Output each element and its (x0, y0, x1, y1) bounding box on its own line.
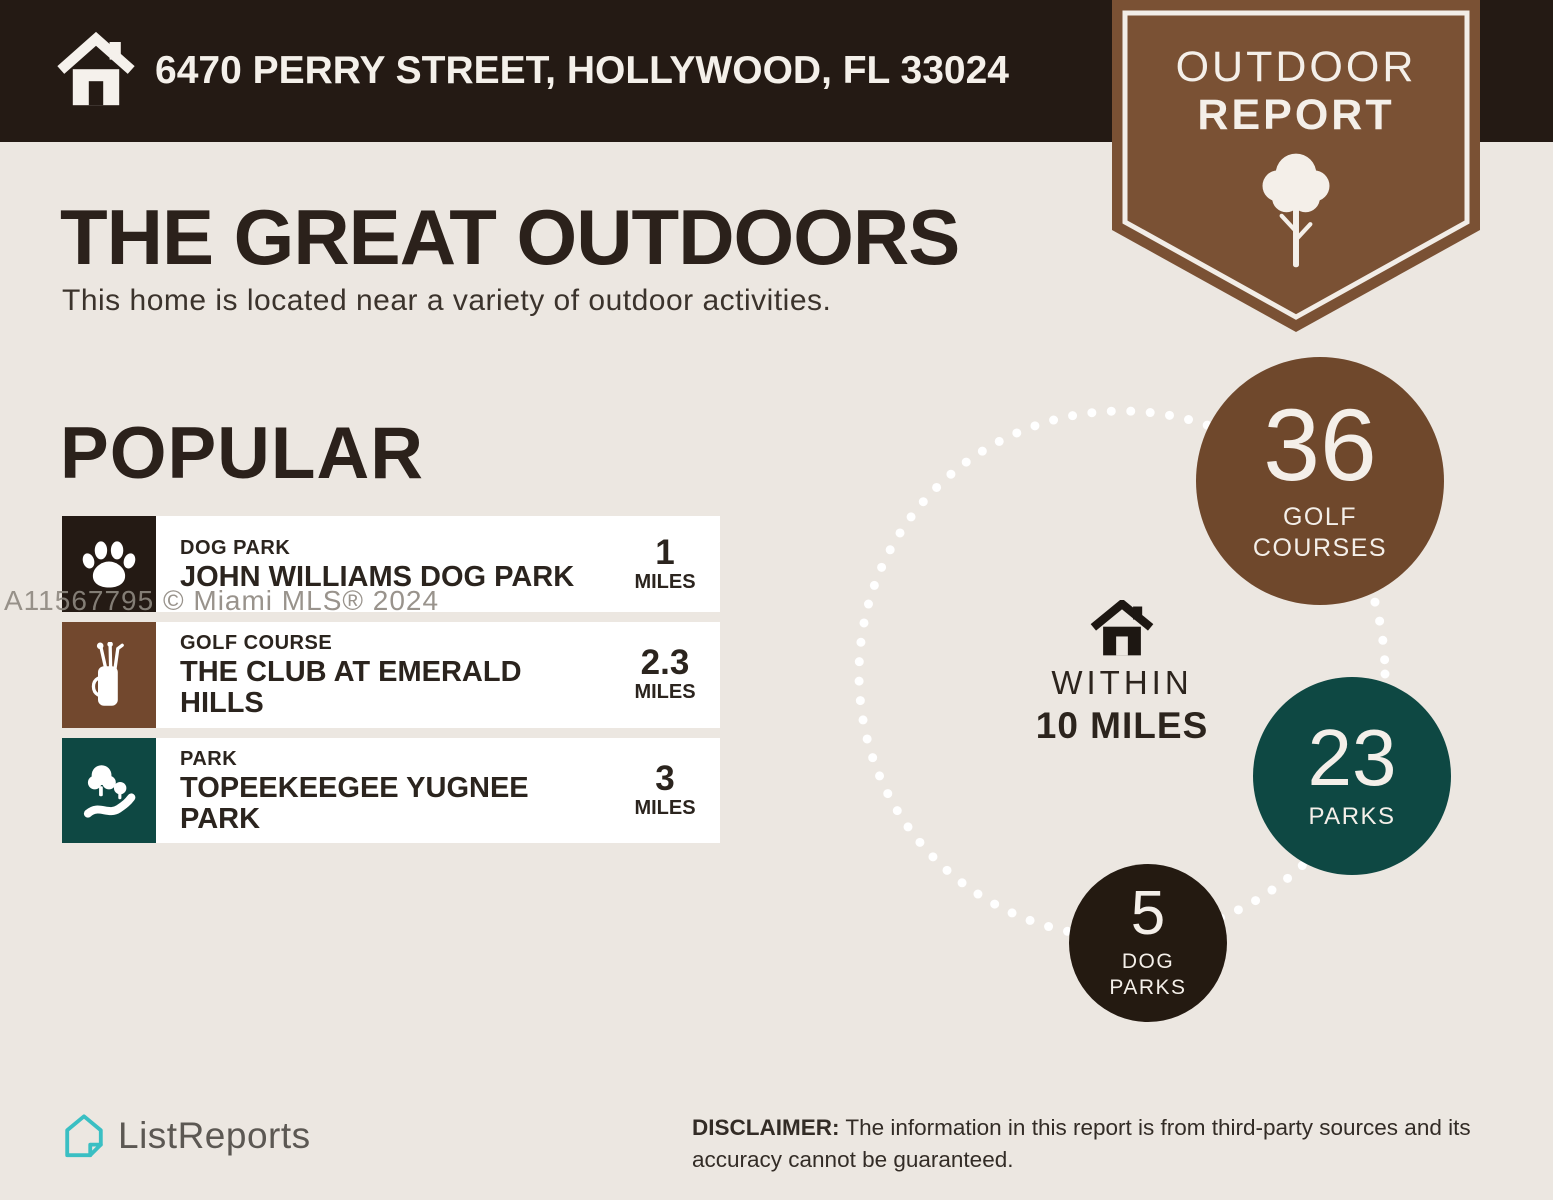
list-item-park: PARK TOPEEKEEGEE YUGNEE PARK 3 MILES (62, 738, 720, 844)
golf-bag-icon (62, 622, 156, 728)
disclaimer: DISCLAIMER: The information in this repo… (692, 1112, 1492, 1175)
list-item-name: THE CLUB AT EMERALD HILLS (180, 657, 575, 720)
stat-value: 23 (1308, 720, 1397, 796)
page-subtitle: This home is located near a variety of o… (62, 284, 831, 318)
list-item-golf-course: GOLF COURSE THE CLUB AT EMERALD HILLS 2.… (62, 622, 720, 728)
list-item-distance: 2.3 MILES (624, 622, 720, 728)
page-title: THE GREAT OUTDOORS (60, 192, 959, 283)
radius-info: WITHIN 10 MILES (1020, 600, 1224, 747)
distance-unit: MILES (634, 796, 695, 820)
stat-label: PARKS (1308, 802, 1395, 832)
list-item-text: PARK TOPEEKEEGEE YUGNEE PARK (156, 738, 624, 844)
distance-value: 3 (655, 761, 674, 796)
stat-golf-courses: 36 GOLF COURSES (1196, 357, 1444, 605)
radius-label-line2: 10 MILES (1020, 705, 1224, 747)
list-item-distance: 1 MILES (624, 516, 720, 612)
list-item-category: PARK (180, 748, 616, 771)
badge-title-line2: REPORT (1112, 94, 1480, 137)
tree-icon (1248, 150, 1344, 272)
mls-watermark: A11567795 © Miami MLS® 2024 (4, 585, 439, 617)
stat-dog-parks: 5 DOG PARKS (1069, 864, 1227, 1022)
list-item-category: GOLF COURSE (180, 632, 616, 655)
listreports-brand: ListReports (60, 1112, 311, 1160)
stat-label: GOLF COURSES (1235, 502, 1405, 565)
home-icon (1089, 600, 1155, 656)
listreports-logo-icon (60, 1112, 108, 1160)
popular-list: DOG PARK JOHN WILLIAMS DOG PARK 1 MILES (62, 516, 720, 843)
distance-unit: MILES (634, 680, 695, 704)
stat-label: DOG PARKS (1102, 949, 1194, 1002)
distance-unit: MILES (634, 570, 695, 594)
distance-value: 1 (655, 535, 674, 570)
list-item-category: DOG PARK (180, 537, 616, 560)
disclaimer-label: DISCLAIMER: (692, 1115, 840, 1140)
list-item-text: GOLF COURSE THE CLUB AT EMERALD HILLS (156, 622, 624, 728)
list-item-distance: 3 MILES (624, 738, 720, 844)
radius-label-line1: WITHIN (1020, 664, 1224, 702)
badge-title-line1: OUTDOOR (1112, 46, 1480, 89)
stat-value: 36 (1263, 397, 1376, 494)
list-item-name: TOPEEKEEGEE YUGNEE PARK (180, 773, 575, 836)
brand-name: ListReports (118, 1115, 311, 1157)
home-icon (56, 27, 136, 113)
report-badge: OUTDOOR REPORT (1112, 0, 1480, 334)
stat-parks: 23 PARKS (1253, 677, 1451, 875)
stat-value: 5 (1131, 885, 1165, 944)
outdoor-report-page: 6470 PERRY STREET, HOLLYWOOD, FL 33024 O… (0, 0, 1553, 1200)
property-address: 6470 PERRY STREET, HOLLYWOOD, FL 33024 (155, 0, 1009, 142)
distance-value: 2.3 (641, 645, 690, 680)
park-icon (62, 738, 156, 844)
popular-section-title: POPULAR (60, 412, 424, 495)
